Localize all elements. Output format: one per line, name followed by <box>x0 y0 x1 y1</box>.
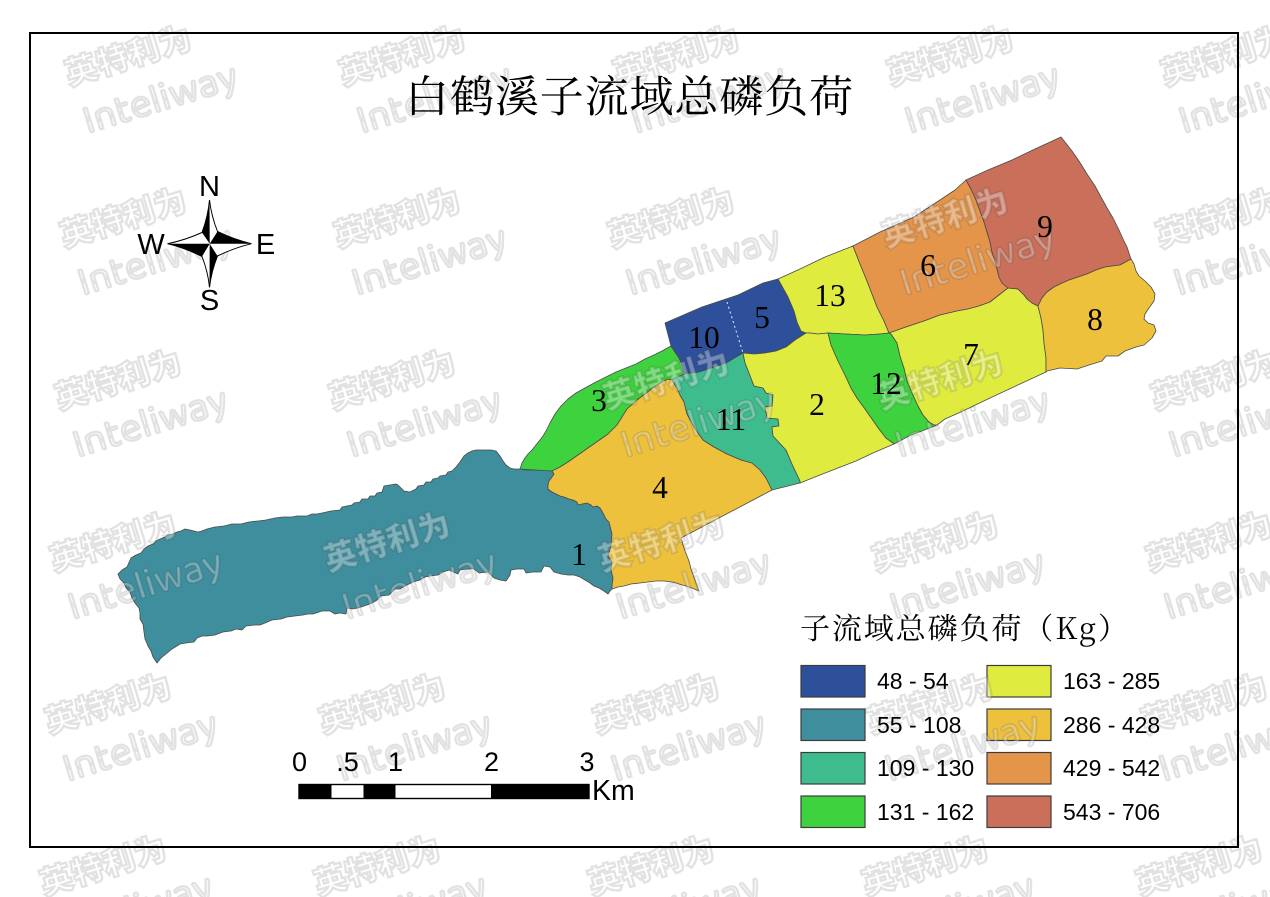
svg-text:1: 1 <box>388 747 403 777</box>
svg-text:163 - 285: 163 - 285 <box>1063 668 1160 694</box>
svg-text:5: 5 <box>754 300 770 335</box>
svg-text:543 - 706: 543 - 706 <box>1063 799 1160 825</box>
svg-text:W: W <box>137 229 165 261</box>
svg-text:4: 4 <box>652 470 668 505</box>
svg-text:N: N <box>199 171 220 203</box>
svg-text:10: 10 <box>688 320 720 355</box>
svg-text:1: 1 <box>571 537 587 572</box>
svg-text:E: E <box>256 229 275 261</box>
svg-text:13: 13 <box>814 278 846 313</box>
svg-text:48 - 54: 48 - 54 <box>877 668 949 694</box>
svg-text:9: 9 <box>1037 209 1053 244</box>
svg-text:12: 12 <box>870 366 902 401</box>
svg-text:131 - 162: 131 - 162 <box>877 799 974 825</box>
svg-text:2: 2 <box>484 747 499 777</box>
svg-text:429 - 542: 429 - 542 <box>1063 755 1160 781</box>
svg-text:8: 8 <box>1087 302 1103 337</box>
svg-text:3: 3 <box>579 747 594 777</box>
svg-text:Km: Km <box>592 775 635 807</box>
svg-text:0: 0 <box>292 747 307 777</box>
svg-text:2: 2 <box>809 387 825 422</box>
svg-text:3: 3 <box>591 383 607 418</box>
svg-text:.5: .5 <box>336 747 359 777</box>
svg-text:6: 6 <box>920 248 936 283</box>
svg-text:55 - 108: 55 - 108 <box>877 712 961 738</box>
svg-text:S: S <box>200 285 219 317</box>
svg-text:11: 11 <box>716 402 746 437</box>
svg-text:109 - 130: 109 - 130 <box>877 755 974 781</box>
svg-text:286 - 428: 286 - 428 <box>1063 712 1160 738</box>
svg-text:7: 7 <box>963 337 979 372</box>
